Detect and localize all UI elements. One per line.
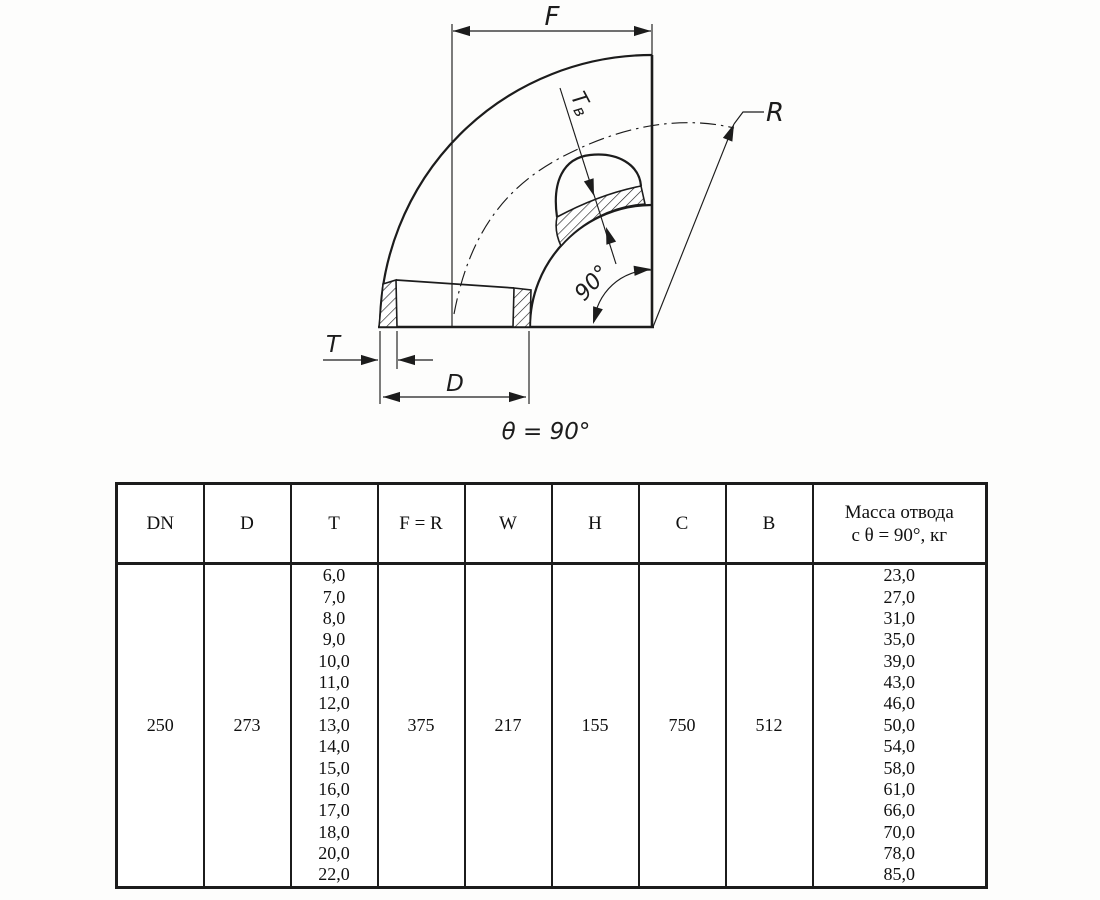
angle-label: 90° xyxy=(570,261,615,307)
col-header-mass: Масса отвода с θ = 90°, кг xyxy=(813,484,987,564)
angle-arrow-right xyxy=(634,264,652,276)
dimension-table: DN D T F = R W H C B Масса отвода с θ = … xyxy=(115,482,988,889)
elbow-technical-drawing: F R Tв 90° xyxy=(0,0,1100,470)
t-label: T xyxy=(326,332,342,358)
theta-caption: θ = 90° xyxy=(502,419,591,445)
col-header-fr: F = R xyxy=(378,484,465,564)
tv-arrow-upper xyxy=(584,178,599,197)
d-label: D xyxy=(446,371,464,397)
cell-w: 217 xyxy=(465,564,552,888)
r-arrow xyxy=(723,122,739,142)
dim-d: D xyxy=(383,331,529,404)
col-header-b: B xyxy=(726,484,813,564)
cell-d: 273 xyxy=(204,564,291,888)
cell-mass-values: 23,0 27,0 31,0 35,0 39,0 43,0 46,0 50,0 … xyxy=(813,564,987,888)
t-arrow-right xyxy=(398,355,415,365)
header-row: DN D T F = R W H C B Масса отвода с θ = … xyxy=(117,484,987,564)
angle-90: 90° xyxy=(570,261,651,326)
t-arrow-left xyxy=(361,355,378,365)
f-arrow-left xyxy=(453,26,470,36)
f-arrow-right xyxy=(634,26,651,36)
upper-end-face xyxy=(556,155,645,246)
cell-fr: 375 xyxy=(378,564,465,888)
page: F R Tв 90° xyxy=(0,0,1100,900)
tv-arrow-lower xyxy=(601,225,616,244)
cell-t-values: 6,0 7,0 8,0 9,0 10,0 11,0 12,0 13,0 14,0… xyxy=(291,564,378,888)
mass-header-line1: Масса отвода xyxy=(814,501,986,524)
r-label: R xyxy=(766,98,784,128)
col-header-c: C xyxy=(639,484,726,564)
dim-r: R xyxy=(653,98,784,327)
cell-dn: 250 xyxy=(117,564,204,888)
col-header-h: H xyxy=(552,484,639,564)
bottom-opening-far-edge xyxy=(396,280,514,288)
dim-t: T xyxy=(323,331,433,404)
col-header-t: T xyxy=(291,484,378,564)
f-label: F xyxy=(545,2,561,32)
d-arrow-right xyxy=(509,392,526,402)
cell-c: 750 xyxy=(639,564,726,888)
cell-h: 155 xyxy=(552,564,639,888)
data-row: 250 273 6,0 7,0 8,0 9,0 10,0 11,0 12,0 1… xyxy=(117,564,987,888)
mass-header-line2: с θ = 90°, кг xyxy=(814,524,986,547)
right-wall-hatch xyxy=(513,288,531,327)
left-wall-hatch xyxy=(379,280,397,327)
d-arrow-left xyxy=(383,392,400,402)
elbow-outline xyxy=(378,24,654,327)
cell-b: 512 xyxy=(726,564,813,888)
col-header-dn: DN xyxy=(117,484,204,564)
angle-arrow-bottom xyxy=(588,306,603,325)
dim-f: F xyxy=(453,2,651,36)
col-header-w: W xyxy=(465,484,552,564)
col-header-d: D xyxy=(204,484,291,564)
